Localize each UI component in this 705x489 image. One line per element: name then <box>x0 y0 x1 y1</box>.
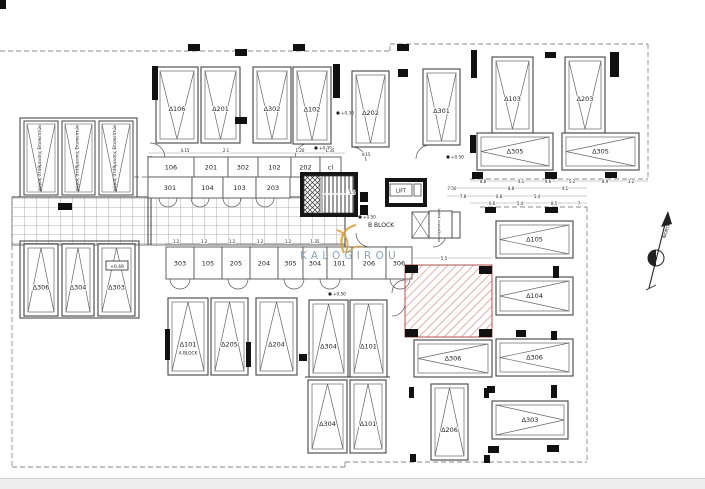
wall-column <box>547 445 559 452</box>
visitor-space: χώρος στάθμευσης Επισκεπτών <box>24 121 58 195</box>
parking-space-label: Δ306 <box>526 354 543 362</box>
parking-space-label: Δ304 <box>320 343 337 351</box>
wall-column <box>545 172 557 179</box>
parking-space-label: Δ306 <box>33 283 50 291</box>
dimension-label: 4.15 <box>181 148 190 153</box>
parking-space-label: Δ203 <box>577 95 594 103</box>
parking-space: Δ302 <box>253 67 291 143</box>
storage-cell-label: 202 <box>299 164 311 172</box>
a-block-label: A BLOCK <box>179 351 198 357</box>
wall-column <box>235 49 247 56</box>
wall-column <box>246 342 251 367</box>
floor-plan-drawing: 106201302102202cl30110410320330310520520… <box>0 0 705 478</box>
lift-label: LIFT <box>396 189 407 195</box>
wall-column <box>516 330 526 337</box>
parking-space-label: Δ304 <box>319 420 336 428</box>
visitor-space-label: χώρος στάθμευσης Επισκεπτών <box>75 124 80 191</box>
parking-space-label: Δ205 <box>221 341 238 349</box>
parking-space-label: Δ302 <box>264 105 281 113</box>
dimension-label: 7.8 <box>460 194 467 199</box>
wall-column <box>299 354 307 361</box>
dimension-label: 5.2 <box>569 179 576 184</box>
wall-column <box>360 205 368 215</box>
elevation-marker: +0.50 <box>363 215 376 220</box>
storage-cell-label: cl <box>328 164 334 172</box>
dimension-label: 4.1 <box>562 186 569 191</box>
dimension-label: 5.4 <box>534 194 541 199</box>
wall-column <box>398 69 408 77</box>
door-arc <box>356 233 370 247</box>
dimension-label: 7 <box>578 201 581 206</box>
storage-cell-label: 103 <box>233 184 245 192</box>
parking-space-label: Δ201 <box>212 105 229 113</box>
door-arc <box>392 280 405 293</box>
parking-space-label: Δ204 <box>268 341 285 349</box>
parking-space: Δ303 <box>492 401 568 439</box>
wall-column <box>165 329 170 360</box>
bottom-scrollbar[interactable] <box>0 478 705 489</box>
parking-space: Δ101 <box>350 300 387 377</box>
vent-shaft <box>304 176 320 213</box>
parking-space: Δ201 <box>201 67 240 143</box>
wall-column <box>551 331 557 340</box>
lift: LIFT <box>385 178 427 207</box>
wall-column <box>471 50 477 78</box>
dimension-label: 8.8 <box>508 186 515 191</box>
dimension-label: 1.2 <box>201 239 208 244</box>
parking-space-label: Δ105 <box>526 236 543 244</box>
parking-space: Δ103 <box>492 57 533 133</box>
door-arc <box>320 279 340 289</box>
wall-column <box>410 454 416 462</box>
elevation-dot <box>336 111 339 114</box>
elevation-marker: +0.50 <box>333 292 346 297</box>
visitor-space-label: χώρος στάθμευσης Επισκεπτών <box>37 124 42 191</box>
parking-space: Δ106 <box>156 67 198 143</box>
dimension-label: 5.4 <box>349 190 356 195</box>
dimension-label: 5.4 <box>517 201 524 206</box>
dimension-label: 8.9 <box>602 179 609 184</box>
parking-space-label: Δ306 <box>445 355 462 363</box>
wall-column <box>485 207 496 213</box>
storage-cell-label: 101 <box>333 260 345 268</box>
parking-space: Δ306 <box>24 244 58 316</box>
wall-column <box>333 64 340 98</box>
parking-space-label: Δ101 <box>360 343 377 351</box>
parking-space: Δ204 <box>256 298 297 375</box>
wall-column <box>409 387 414 398</box>
wall-column <box>397 44 409 51</box>
visitor-space-label: χώρος στάθμευσης Επισκεπτών <box>112 124 117 191</box>
wall-column <box>551 385 557 398</box>
dimension-label: 1.20 <box>296 148 305 153</box>
wall-column <box>58 203 72 210</box>
storage-cell-label: 301 <box>164 184 176 192</box>
door-arc <box>150 143 165 158</box>
parking-space-label: Δ303 <box>522 416 539 424</box>
parking-space: Δ101 <box>350 380 386 453</box>
wall-column <box>553 266 559 278</box>
storage-cell-label: 201 <box>205 164 217 172</box>
north-arrow: NORTH <box>646 211 673 290</box>
elevation-dot <box>328 292 331 295</box>
parking-space: Δ102 <box>293 67 331 144</box>
parking-space: Δ101A BLOCK <box>168 298 208 375</box>
parking-space-label: Δ104 <box>526 292 543 300</box>
parking-space-label: Δ101 <box>360 420 377 428</box>
parking-space-label: Δ103 <box>504 95 521 103</box>
door-arc <box>284 279 304 289</box>
storage-cell-label: 203 <box>267 184 279 192</box>
dimension-label: 4.15 <box>362 152 371 157</box>
parking-space: Δ305 <box>477 133 553 170</box>
parking-space: Δ305 <box>562 133 639 170</box>
parking-space-label: Δ102 <box>304 106 321 114</box>
dimension-label: 8.8 <box>480 179 487 184</box>
storage-cell-label: 305 <box>284 260 296 268</box>
storage-cell-label: 302 <box>237 164 249 172</box>
storage-cell-label: 306 <box>393 260 405 268</box>
parking-space-label: Δ303 <box>108 283 125 291</box>
building-hatch <box>405 265 492 337</box>
dimension-label: 8.5 <box>551 201 558 206</box>
parking-space: Δ104 <box>496 277 573 315</box>
elevation-dot <box>314 146 317 149</box>
storage-cell-label: 102 <box>268 164 280 172</box>
dimension-label: 3.2 <box>628 179 635 184</box>
wall-column <box>188 44 200 51</box>
wall-column <box>545 52 556 58</box>
dimension-label: 1.35 <box>326 148 335 153</box>
parking-space: Δ304 <box>309 300 348 377</box>
parking-space: Δ105 <box>496 221 573 258</box>
storage-cell-label: 303 <box>174 260 186 268</box>
visitor-space: χώρος στάθμευσης Επισκεπτών <box>99 121 133 195</box>
parking-space: Δ306 <box>496 339 573 376</box>
parking-space: Δ301 <box>423 69 460 145</box>
utility-rooms: κοινόχρηστος χώρος <box>412 208 460 242</box>
b-block-label: B BLOCK <box>368 222 395 229</box>
parking-space-label: Δ305 <box>592 148 609 156</box>
floor-plan-sheet: 106201302102202cl30110410320330310520520… <box>0 0 705 489</box>
parking-space-label: Δ206 <box>441 426 458 434</box>
door-arc <box>170 279 190 289</box>
door-arc <box>392 303 405 316</box>
wall-column <box>472 172 483 179</box>
parking-space: Δ306 <box>414 340 492 377</box>
storage-cell-label: 206 <box>363 260 375 268</box>
storage-cell-label: 205 <box>230 260 242 268</box>
parking-space: Δ202 <box>352 71 389 147</box>
storage-cell-label: 204 <box>258 260 270 268</box>
storage-cell-label: 104 <box>201 184 213 192</box>
wall-column <box>293 44 305 51</box>
parking-space: Δ303 <box>98 244 135 316</box>
dimension-label: 1.2 <box>173 239 180 244</box>
wall-column <box>405 265 418 273</box>
utility-room-label: κοινόχρηστος χώρος <box>437 208 441 242</box>
parking-space: Δ304 <box>308 380 347 453</box>
parking-space-label: Δ101 <box>180 341 197 349</box>
wall-column <box>235 117 247 124</box>
elevation-dot <box>358 215 361 218</box>
dimension-label: 9.6 <box>545 179 552 184</box>
parking-space: Δ205 <box>211 298 248 375</box>
elevation-marker: +0.30 <box>341 111 354 116</box>
dimension-label: 1.2 <box>285 239 292 244</box>
elevation-dot <box>446 155 449 158</box>
parking-space-label: Δ305 <box>507 148 524 156</box>
wall-column <box>484 455 490 463</box>
wall-column <box>488 446 499 453</box>
wall-column <box>152 66 158 100</box>
parking-space-label: Δ202 <box>362 109 379 117</box>
dimension-label: 0.8 <box>496 194 503 199</box>
wall-column <box>360 192 368 202</box>
dimension-label: 7.50 <box>448 186 457 191</box>
door-arc <box>228 279 248 289</box>
wall-column <box>479 329 492 337</box>
dimension-label: 2.1 <box>223 148 230 153</box>
elevation-marker: +0.50 <box>451 155 464 160</box>
storage-cell-label: 304 <box>309 260 321 268</box>
parking-space-label: Δ106 <box>169 105 186 113</box>
dimension-label: 1.2 <box>257 239 264 244</box>
wall-column <box>405 329 418 337</box>
dimension-label: 1.2 <box>229 239 236 244</box>
parking-space: Δ206 <box>431 384 468 460</box>
dimension-label: 6.6 <box>489 201 496 206</box>
parking-space: Δ203 <box>565 57 605 133</box>
wall-column <box>610 52 619 77</box>
dimension-label: 4.1 <box>518 179 525 184</box>
wall-column <box>545 207 558 213</box>
level-badge-text: +0.49 <box>110 264 124 270</box>
parking-space-label: Δ304 <box>70 283 87 291</box>
wall-column <box>484 388 489 398</box>
wall-column <box>470 135 476 153</box>
storage-cell-label: 106 <box>165 164 177 172</box>
dimension-label: 1.35 <box>311 239 320 244</box>
parking-space-label: Δ301 <box>433 107 450 115</box>
dimension-label: 5.5 <box>441 256 448 261</box>
sheet-corner-mark <box>0 0 6 9</box>
storage-cell-label: 105 <box>202 260 214 268</box>
door-arc <box>416 145 430 159</box>
wall-column <box>479 266 492 274</box>
visitor-space: χώρος στάθμευσης Επισκεπτών <box>62 121 95 195</box>
parking-space: Δ304 <box>62 244 94 316</box>
wall-column <box>605 172 617 178</box>
